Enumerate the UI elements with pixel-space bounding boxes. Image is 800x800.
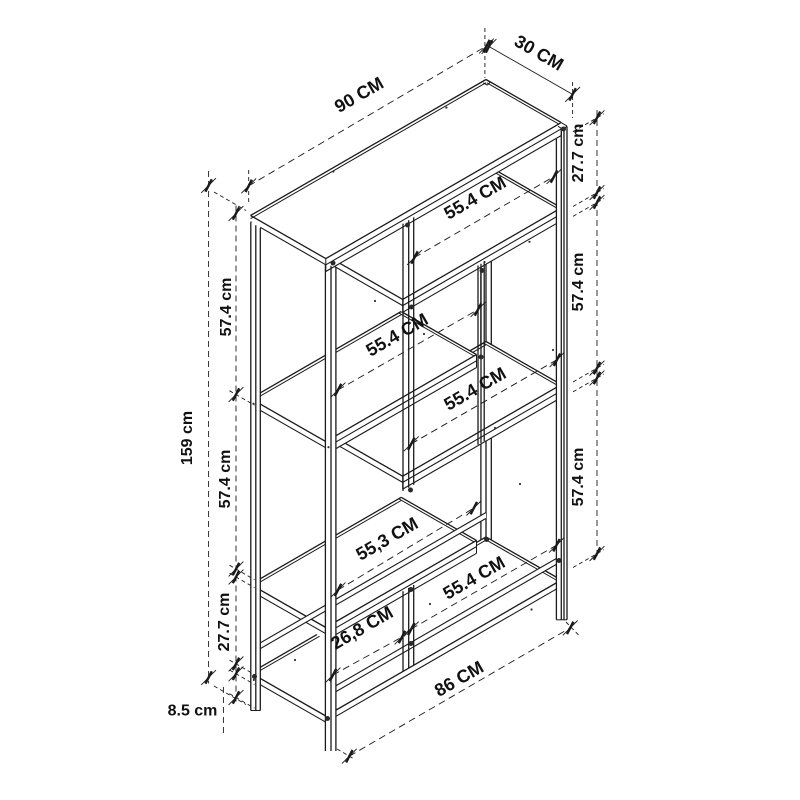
svg-text:27.7 cm: 27.7 cm (570, 124, 587, 183)
svg-text:57.4 cm: 57.4 cm (218, 278, 235, 337)
svg-text:57.4 cm: 57.4 cm (570, 253, 587, 312)
svg-text:57.4 cm: 57.4 cm (217, 450, 234, 509)
svg-text:8.5 cm: 8.5 cm (168, 703, 218, 720)
svg-text:27.7 cm: 27.7 cm (216, 593, 233, 652)
svg-text:159 cm: 159 cm (179, 411, 196, 465)
svg-text:57.4 cm: 57.4 cm (570, 448, 587, 507)
